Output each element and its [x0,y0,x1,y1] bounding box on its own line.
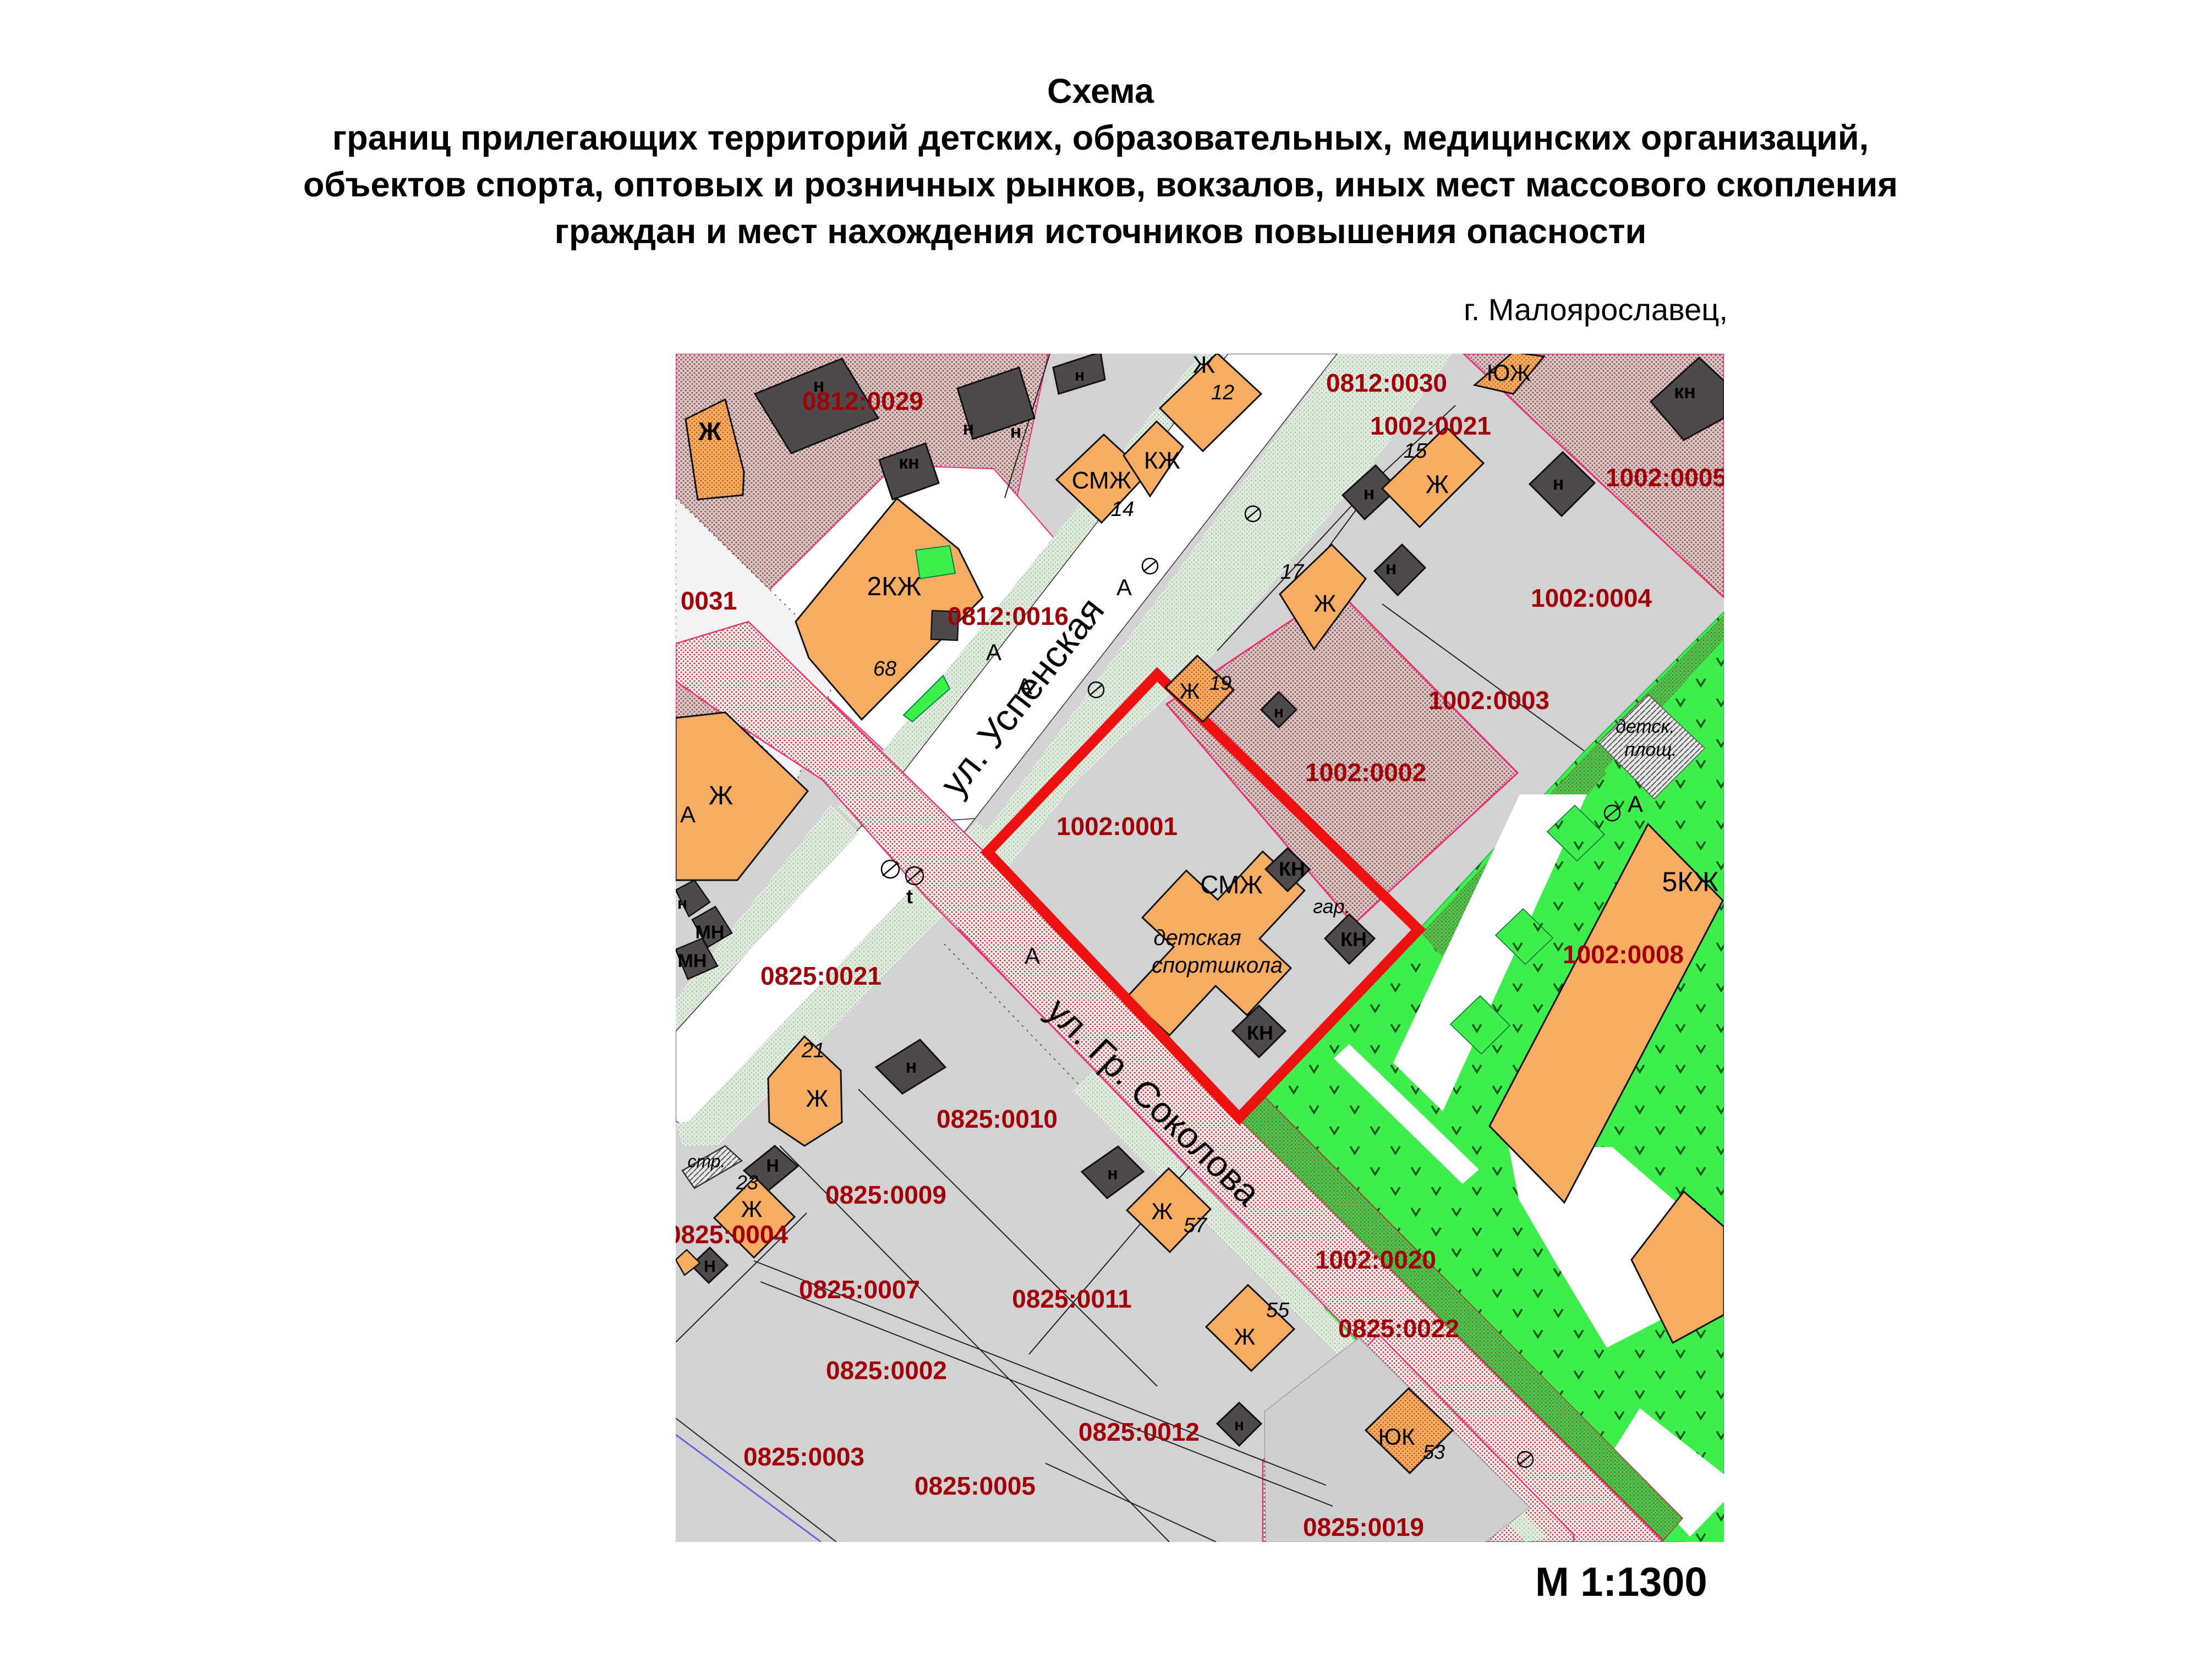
svg-text:53: 53 [1423,1441,1445,1463]
svg-text:стр.: стр. [688,1151,726,1171]
svg-text:А: А [1017,673,1032,699]
svg-text:0812:0030: 0812:0030 [1326,369,1447,397]
svg-text:КЖ: КЖ [1144,447,1181,474]
svg-text:17: 17 [1280,561,1305,584]
svg-text:н: н [677,894,687,913]
svg-text:МН: МН [678,951,707,971]
svg-text:площ.: площ. [1624,739,1677,760]
svg-text:Ж: Ж [1314,590,1337,617]
svg-text:спортшкола: спортшкола [1152,953,1283,978]
svg-text:1002:0008: 1002:0008 [1563,940,1684,969]
svg-text:Ж: Ж [709,781,733,810]
svg-text:Ж: Ж [698,417,721,446]
svg-text:57: 57 [1184,1214,1208,1237]
svg-text:0825:0007: 0825:0007 [799,1275,920,1304]
svg-text:А: А [986,639,1001,665]
svg-text:Н: Н [766,1156,779,1176]
svg-text:ЮЖ: ЮЖ [1487,360,1531,386]
svg-text:н: н [1075,366,1085,385]
svg-text:0825:0002: 0825:0002 [826,1356,947,1385]
svg-text:5КЖ: 5КЖ [1662,866,1718,897]
svg-text:А: А [1628,791,1643,817]
svg-text:12: 12 [1211,381,1234,404]
svg-text:1002:0020: 1002:0020 [1315,1245,1436,1274]
svg-text:2КЖ: 2КЖ [867,572,922,601]
svg-text:Ж: Ж [1152,1198,1173,1224]
svg-text:гар.: гар. [1313,895,1350,918]
svg-text:А: А [1116,574,1132,600]
svg-text:КН: КН [1279,858,1305,880]
svg-text:Ж: Ж [1180,679,1200,704]
svg-text:0825:0021: 0825:0021 [760,962,882,990]
svg-text:0825:0003: 0825:0003 [743,1442,864,1471]
svg-text:1002:0001: 1002:0001 [1056,812,1178,841]
svg-text:н: н [963,418,974,439]
svg-text:Ж: Ж [1426,470,1449,498]
svg-text:н: н [1553,473,1564,494]
svg-text:1002:0004: 1002:0004 [1531,584,1652,612]
svg-text:н: н [1274,703,1284,721]
svg-text:0825:0019: 0825:0019 [1303,1513,1424,1541]
svg-text:детская: детская [1153,926,1241,950]
svg-text:1002:0005: 1002:0005 [1606,463,1724,492]
svg-text:68: 68 [873,657,896,680]
svg-text:н: н [813,375,825,396]
svg-text:КН: КН [1247,1022,1273,1044]
svg-text:МН: МН [696,922,725,943]
svg-text:21: 21 [801,1039,825,1062]
svg-text:детск.: детск. [1616,716,1675,737]
svg-text:0825:0012: 0825:0012 [1078,1418,1200,1446]
svg-text:Ж: Ж [741,1196,763,1222]
svg-text:ЮК: ЮК [1378,1424,1415,1450]
svg-text:23: 23 [736,1171,758,1194]
svg-text:СМЖ: СМЖ [1200,870,1263,899]
svg-text:н: н [1010,421,1022,442]
svg-text:А: А [1025,943,1040,969]
svg-text:19: 19 [1209,672,1231,694]
svg-text:КН: КН [1340,928,1367,951]
svg-text:0825:0004: 0825:0004 [676,1220,788,1249]
svg-text:14: 14 [1111,498,1134,521]
svg-text:н: н [1386,558,1397,579]
svg-text:кн: кн [899,452,919,473]
svg-text:н: н [1107,1163,1118,1183]
svg-text:А: А [680,801,696,827]
svg-text:Ж: Ж [806,1085,829,1112]
svg-text:0031: 0031 [681,586,737,615]
svg-text:1002:0002: 1002:0002 [1305,758,1426,787]
svg-text:0825:0011: 0825:0011 [1012,1284,1131,1313]
svg-text:15: 15 [1404,440,1427,463]
svg-text:1002:0003: 1002:0003 [1428,686,1550,715]
svg-text:Ж: Ж [1193,354,1216,378]
svg-text:кн: кн [1674,380,1696,403]
svg-text:н: н [1364,483,1375,504]
svg-text:Ж: Ж [1234,1324,1256,1349]
svg-text:СМЖ: СМЖ [1072,467,1132,494]
svg-text:1002:0021: 1002:0021 [1370,411,1491,440]
svg-text:t: t [906,885,913,908]
svg-text:0825:0009: 0825:0009 [825,1181,946,1209]
svg-text:0825:0010: 0825:0010 [937,1105,1058,1133]
svg-text:Н: Н [704,1258,716,1276]
svg-text:0825:0022: 0825:0022 [1338,1314,1459,1343]
svg-text:0825:0005: 0825:0005 [915,1472,1036,1500]
svg-text:55: 55 [1266,1299,1290,1322]
svg-text:н: н [1234,1416,1244,1434]
svg-text:н: н [906,1056,917,1077]
